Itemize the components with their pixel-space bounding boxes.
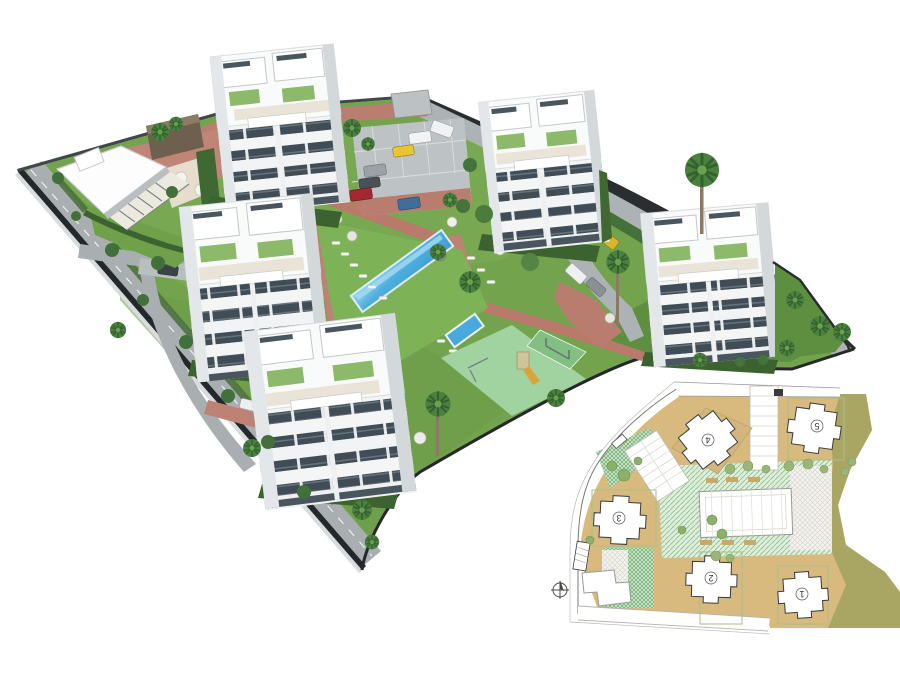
svg-text:2: 2 bbox=[708, 573, 713, 583]
svg-text:5: 5 bbox=[814, 421, 819, 431]
svg-text:4: 4 bbox=[705, 435, 710, 445]
svg-text:1: 1 bbox=[799, 589, 804, 599]
svg-text:3: 3 bbox=[616, 513, 621, 523]
